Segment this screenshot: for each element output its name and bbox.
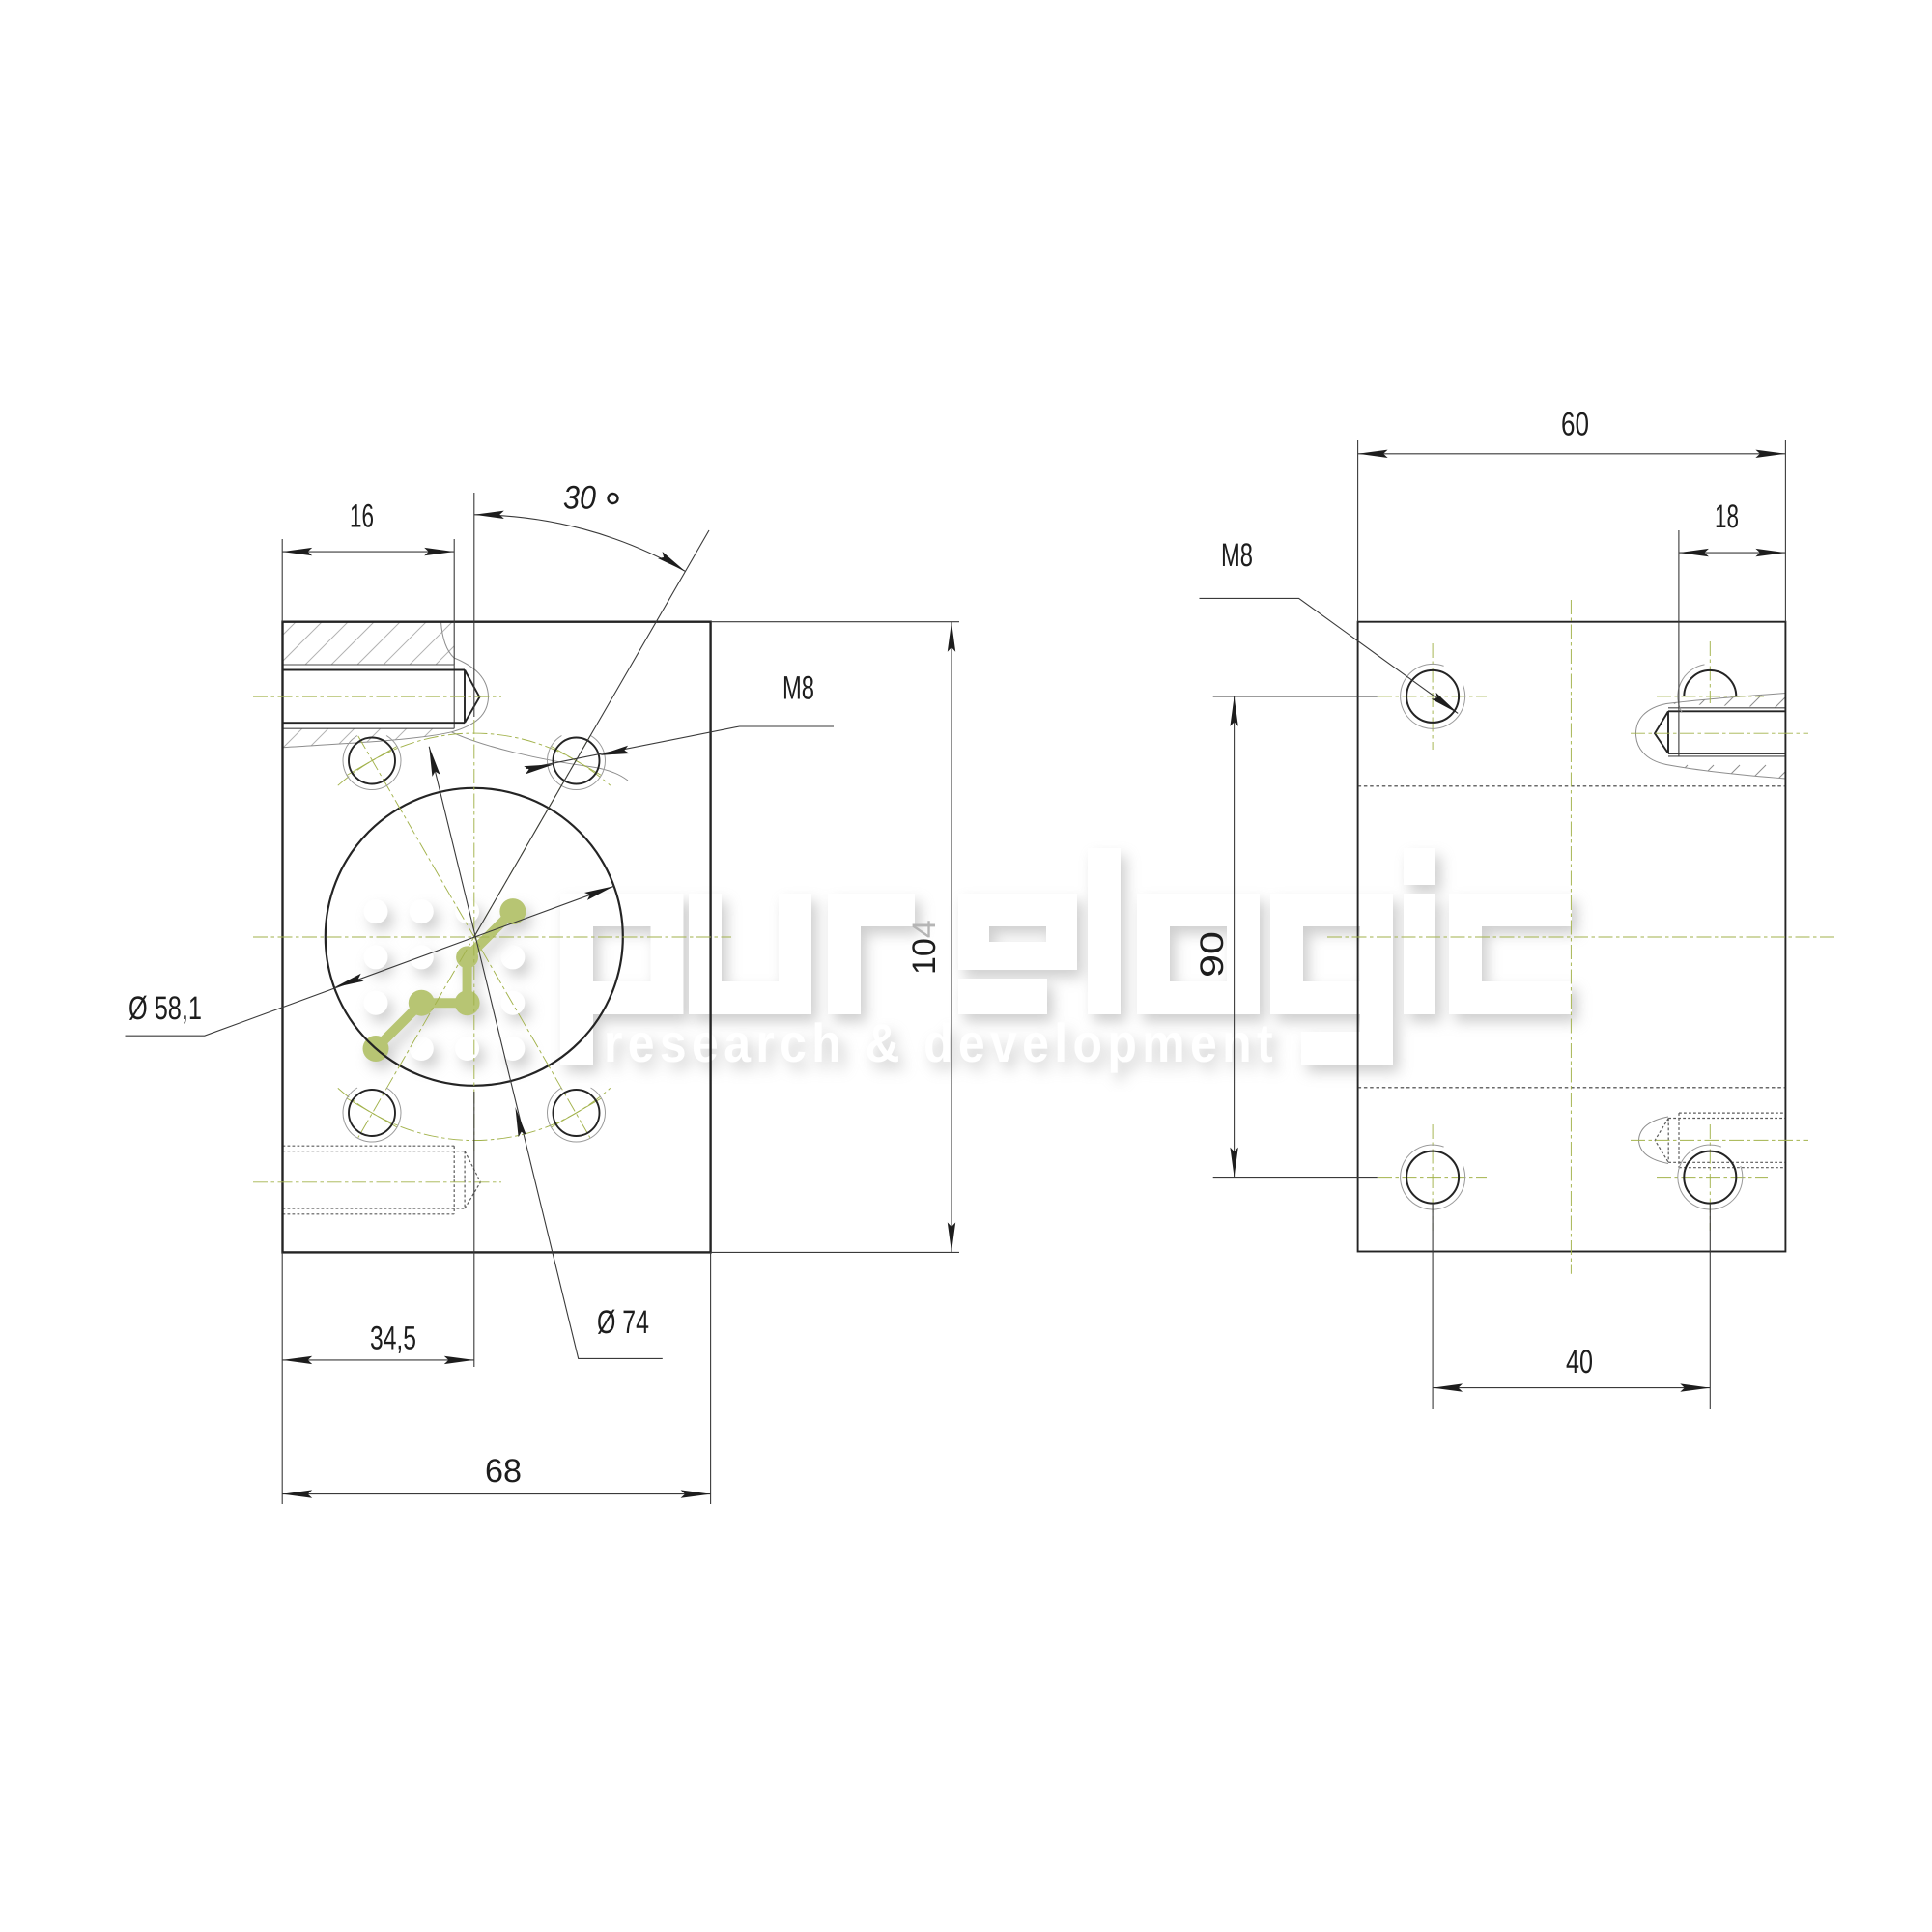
svg-text:40: 40 (1566, 1344, 1593, 1380)
svg-text:104: 104 (906, 920, 943, 975)
svg-text:Ø 58,1: Ø 58,1 (128, 990, 202, 1027)
svg-text:34,5: 34,5 (370, 1321, 416, 1357)
svg-text:M8: M8 (1221, 537, 1253, 574)
svg-text:90: 90 (1194, 931, 1231, 978)
svg-text:68: 68 (485, 1453, 522, 1490)
svg-text:60: 60 (1561, 407, 1589, 443)
svg-text:research & development: research & development (604, 1012, 1278, 1073)
svg-text:18: 18 (1715, 498, 1739, 535)
svg-text:M8: M8 (782, 670, 814, 707)
svg-text:Ø 74: Ø 74 (597, 1304, 649, 1341)
svg-text:30: 30 (563, 480, 596, 517)
svg-text:16: 16 (350, 498, 374, 535)
